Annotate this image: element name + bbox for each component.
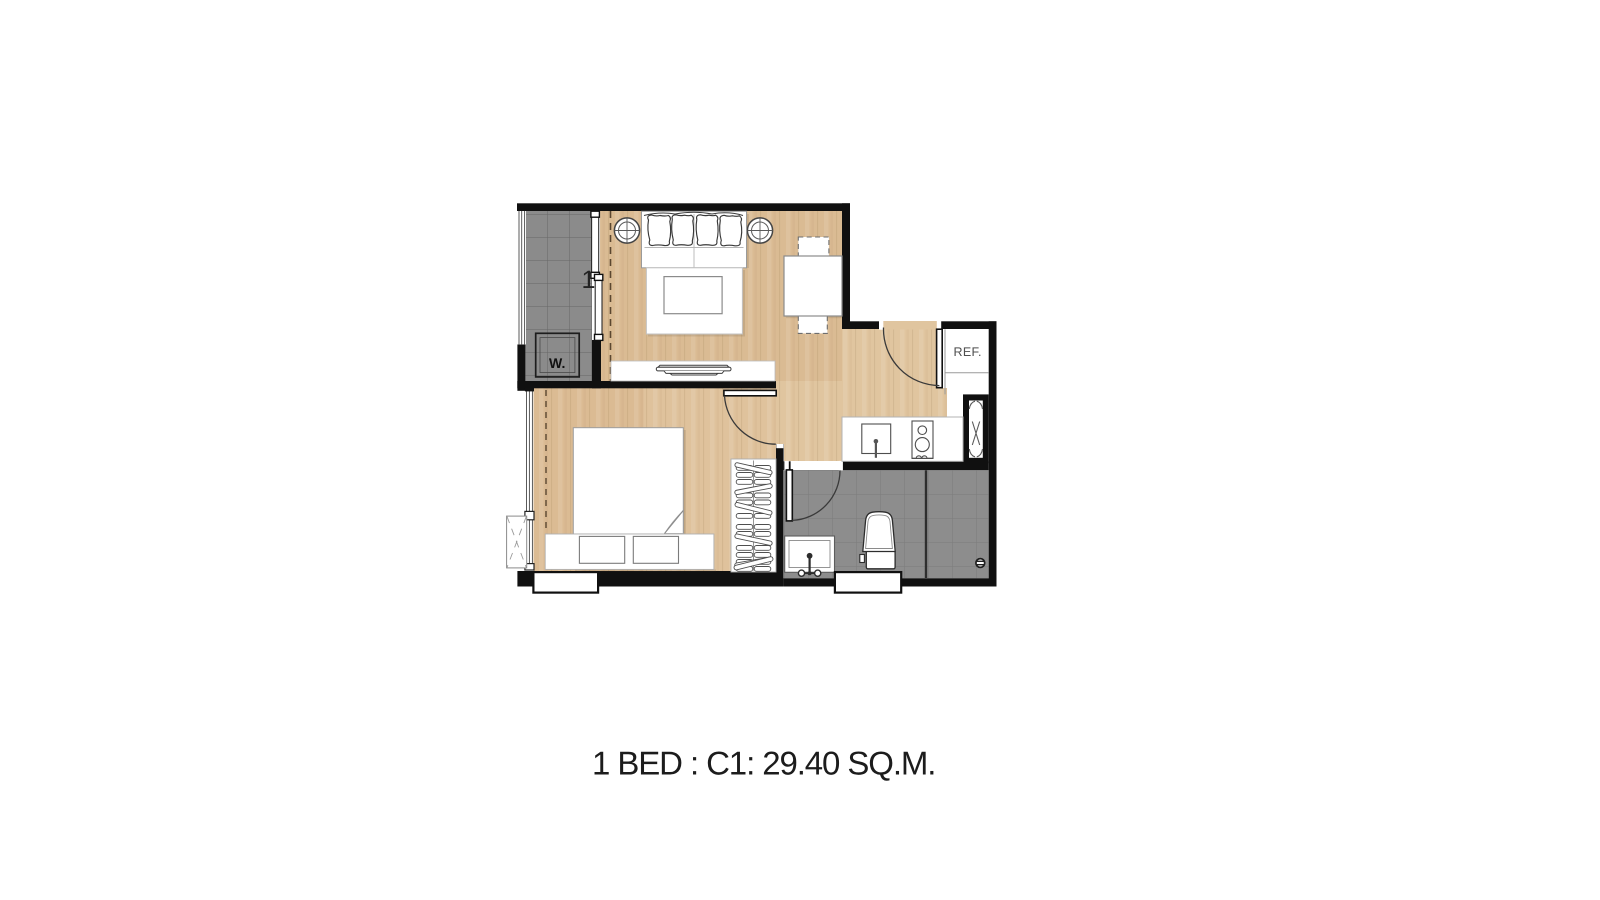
- svg-text:W.: W.: [549, 355, 565, 371]
- svg-text:1: 1: [582, 266, 596, 294]
- svg-text:1 BED : C1: 29.40 SQ.M.: 1 BED : C1: 29.40 SQ.M.: [592, 745, 935, 782]
- svg-text:REF.: REF.: [954, 345, 982, 359]
